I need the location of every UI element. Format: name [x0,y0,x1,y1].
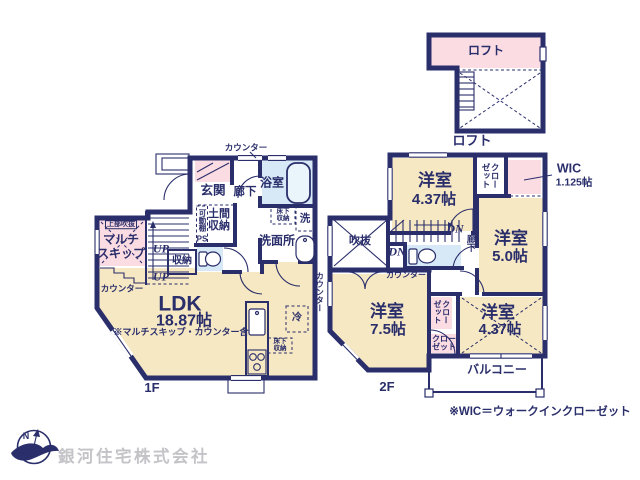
wic-name: WIC [557,162,581,176]
counter-left-label: カウンター [101,284,144,293]
up-label-2: UP [153,271,169,284]
counter-top-label: カウンター [225,143,268,152]
storage-label: 収納 [172,257,192,268]
room-2f-s-size: 7.5帖 [370,322,406,338]
multiskip-label-2: スキップ [97,248,145,261]
closet-s-label-2: ゼット [432,344,456,353]
floorplan-page: ロフト ロフト 洋室 4.37帖 洋室 5.0帖 洋室 7.5帖 洋室 4.37… [0,0,640,480]
up-label-1: UP [153,243,169,256]
room-2f-nw-name: 洋室 [418,172,452,190]
compass-n-label: N [23,432,30,442]
room-2f-s-name: 洋室 [370,303,404,321]
room-2f-e-size: 5.0帖 [492,249,528,265]
laundry-label: 洗 [300,213,311,224]
company-name: 銀河住宅株式会社 [58,449,210,467]
dn-label-2: DN [388,246,405,259]
upper-void-label: 上部吹抜 [105,221,137,229]
wic-fill [508,160,541,194]
bathtub-icon [287,163,310,203]
wic-note: ※WIC＝ウォークインクローゼット [449,406,631,418]
washroom-label: 洗面所 [259,235,295,248]
floor2-label: 2F [379,380,394,394]
loft-room-label: ロフト [468,45,504,58]
room-2f-se-size: 4.37帖 [479,323,522,339]
compass-logo [11,429,59,464]
ldk-note: ※マルチスキップ・カウンター含 [113,328,248,338]
entrance-porch [156,154,190,200]
hall-1f-label: 廊下 [234,186,257,198]
closet-n-label: クローゼット [481,161,499,191]
dn-label-1: DN [446,223,463,236]
room-2f-se-name: 洋室 [481,304,515,322]
room-2f-nw-size: 4.37帖 [412,192,456,208]
void-label: 吹抜 [349,236,371,248]
floor-storage-2-label: 床下収納 [273,338,288,352]
loft-floor-label: ロフト [452,134,491,148]
floor-storage-1-label: 床下収納 [276,208,291,222]
hall-2f-label: 廊下 [465,232,475,254]
loft-window [540,47,546,61]
ps-label: PS [197,236,208,245]
room-2f-e-name: 洋室 [494,230,528,248]
counter-right-label: カウンター [315,269,324,315]
multiskip-label-1: マルチ [103,234,139,247]
counter-2f-label: カウンター [386,272,426,281]
bath-label: 浴室 [260,177,284,190]
doma-storage-label: 土間収納 [207,209,232,233]
balcony-label: バルコニー [467,364,527,377]
fridge-label: 冷 [292,314,302,325]
closet-mid-label: クローゼット [432,298,449,326]
wic-size: 1.125帖 [556,177,593,188]
washbasin-icon [296,236,314,262]
entrance-label: 玄関 [200,184,225,198]
shelf-label: 可動棚 [198,207,206,233]
toilet-2f-icon [409,249,436,264]
floor1-label: 1F [144,381,159,395]
